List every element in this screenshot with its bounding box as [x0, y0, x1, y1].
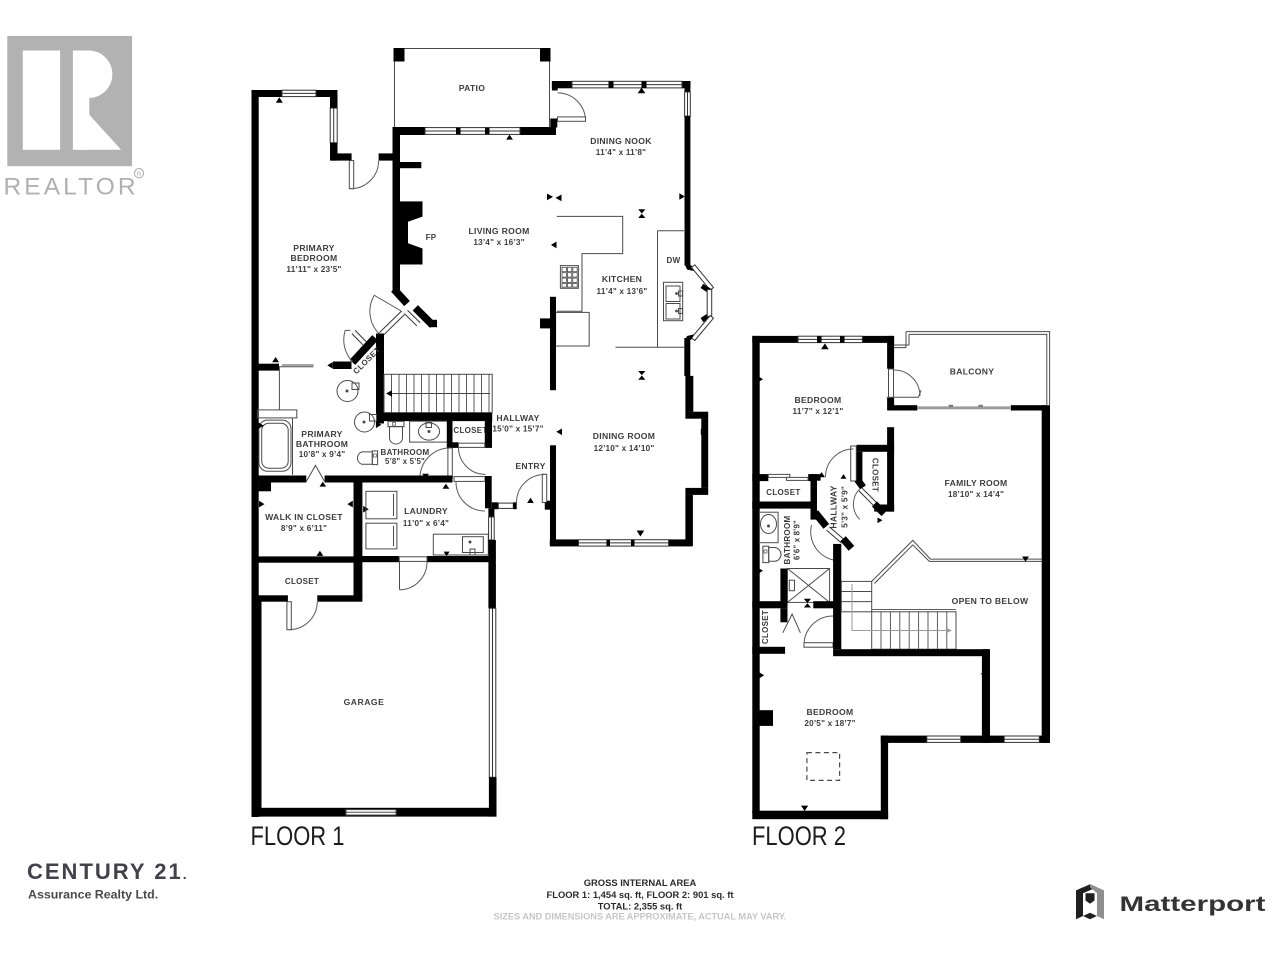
svg-text:Assurance Realty Ltd.: Assurance Realty Ltd.: [28, 888, 158, 902]
svg-text:DINING ROOM: DINING ROOM: [593, 431, 656, 441]
svg-text:SIZES AND DIMENSIONS ARE APPRO: SIZES AND DIMENSIONS ARE APPROXIMATE, AC…: [494, 912, 787, 922]
svg-text:DINING NOOK: DINING NOOK: [590, 136, 652, 146]
svg-text:PRIMARY: PRIMARY: [301, 429, 342, 439]
svg-text:OPEN TO BELOW: OPEN TO BELOW: [952, 596, 1029, 606]
svg-text:FAMILY ROOM: FAMILY ROOM: [945, 478, 1008, 488]
svg-text:8’9" x 6’11": 8’9" x 6’11": [281, 524, 327, 533]
svg-text:CLOSET: CLOSET: [871, 458, 880, 492]
svg-text:5’3" x 5’9": 5’3" x 5’9": [841, 486, 850, 528]
svg-text:BATHROOM: BATHROOM: [381, 448, 430, 457]
svg-text:CLOSET: CLOSET: [285, 577, 319, 586]
svg-text:BEDROOM: BEDROOM: [291, 253, 338, 263]
svg-text:6’6" x 8’9": 6’6" x 8’9": [793, 520, 802, 560]
svg-text:CLOSET: CLOSET: [453, 426, 487, 435]
svg-text:11’0" x 6’4": 11’0" x 6’4": [403, 519, 449, 528]
svg-text:5’8" x 5’5": 5’8" x 5’5": [385, 457, 425, 466]
svg-text:DW: DW: [667, 256, 681, 265]
svg-text:18’10" x 14’4": 18’10" x 14’4": [948, 490, 1004, 499]
svg-text:11’4" x 11’8": 11’4" x 11’8": [596, 148, 646, 157]
svg-text:LIVING ROOM: LIVING ROOM: [468, 226, 529, 236]
svg-text:BEDROOM: BEDROOM: [795, 395, 842, 405]
svg-text:15’0" x 15’7": 15’0" x 15’7": [492, 425, 543, 434]
svg-text:WALK IN CLOSET: WALK IN CLOSET: [265, 512, 343, 522]
svg-text:GARAGE: GARAGE: [344, 697, 385, 707]
svg-text:13’4" x 16’3": 13’4" x 16’3": [473, 238, 524, 247]
svg-text:10’8" x 9’4": 10’8" x 9’4": [299, 450, 346, 459]
svg-text:12’10" x 14’10": 12’10" x 14’10": [594, 444, 655, 453]
svg-text:ENTRY: ENTRY: [515, 461, 545, 471]
svg-text:GROSS INTERNAL AREA: GROSS INTERNAL AREA: [584, 877, 697, 888]
svg-text:CLOSET: CLOSET: [761, 610, 770, 644]
svg-text:20’5" x 18’7": 20’5" x 18’7": [804, 719, 855, 728]
svg-text:Matterport: Matterport: [1120, 892, 1266, 916]
svg-text:REALTOR: REALTOR: [4, 174, 139, 201]
svg-text:BALCONY: BALCONY: [950, 367, 995, 377]
svg-text:HALLWAY: HALLWAY: [829, 485, 839, 528]
svg-text:BEDROOM: BEDROOM: [807, 707, 854, 717]
svg-text:FLOOR 2: FLOOR 2: [752, 821, 846, 851]
svg-text:FP: FP: [426, 233, 437, 242]
svg-text:FLOOR 1: FLOOR 1: [251, 821, 345, 851]
svg-text:BATHROOM: BATHROOM: [783, 516, 792, 565]
svg-text:TOTAL: 2,355 sq. ft: TOTAL: 2,355 sq. ft: [598, 901, 683, 912]
svg-text:LAUNDRY: LAUNDRY: [404, 506, 448, 516]
svg-text:FLOOR 1: 1,454 sq. ft, FLOOR 2: FLOOR 1: 1,454 sq. ft, FLOOR 2: 901 sq. …: [546, 889, 733, 900]
svg-text:HALLWAY: HALLWAY: [496, 413, 539, 423]
svg-text:PRIMARY: PRIMARY: [293, 243, 334, 253]
svg-text:11’4" x 13’6": 11’4" x 13’6": [597, 287, 648, 296]
svg-text:BATHROOM: BATHROOM: [296, 439, 348, 449]
svg-text:CENTURY 21.: CENTURY 21.: [27, 859, 189, 884]
svg-text:11’11" x 23’5": 11’11" x 23’5": [286, 265, 341, 274]
svg-text:PATIO: PATIO: [459, 83, 485, 93]
svg-text:KITCHEN: KITCHEN: [602, 274, 642, 284]
svg-text:11’7" x 12’1": 11’7" x 12’1": [793, 407, 844, 416]
svg-text:CLOSET: CLOSET: [766, 488, 800, 497]
svg-text:R: R: [137, 171, 142, 178]
